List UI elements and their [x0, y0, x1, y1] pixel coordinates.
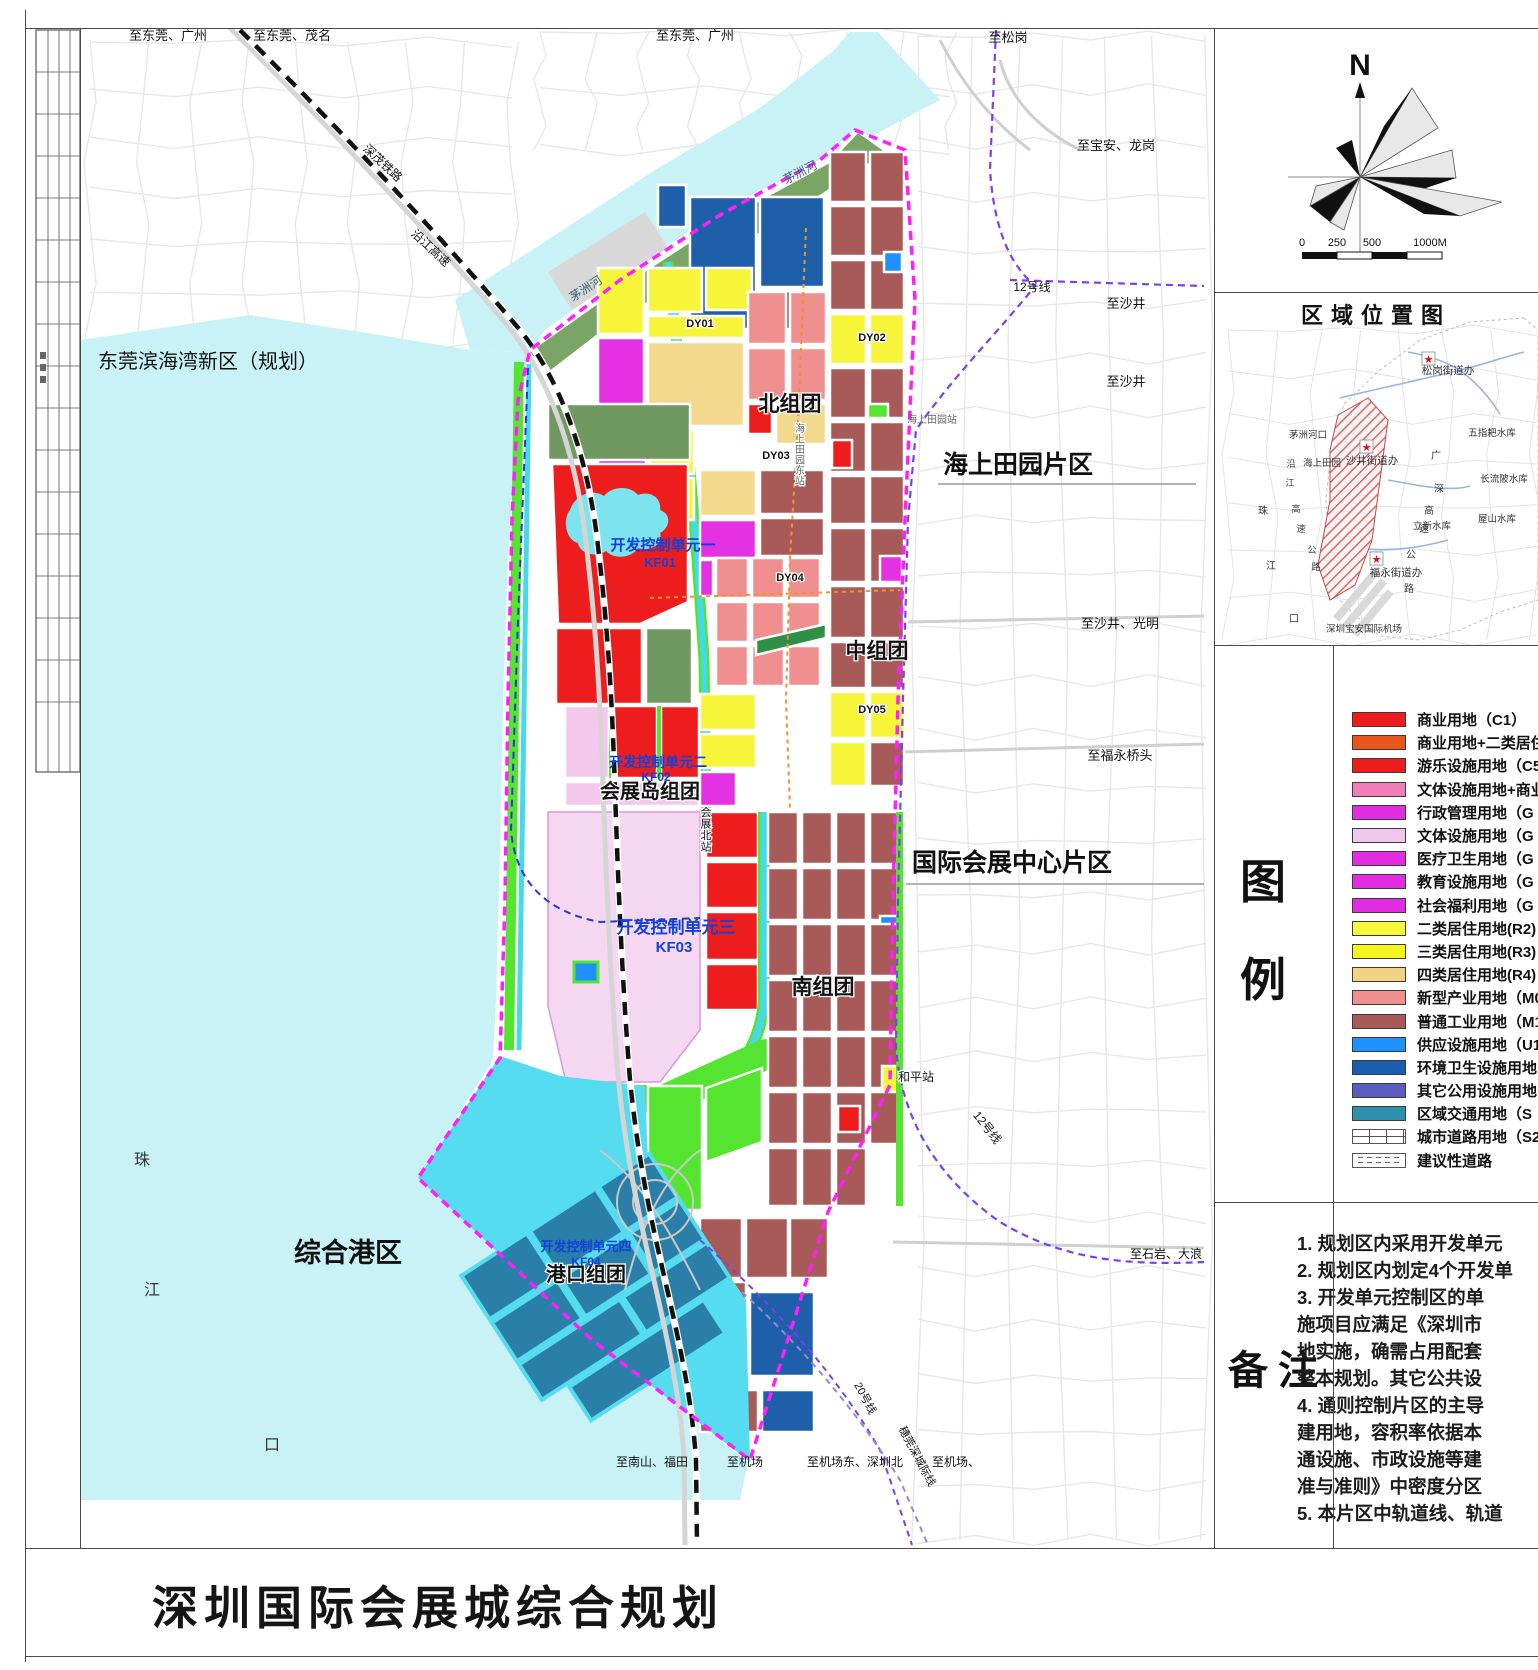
- legend-label-11: 四类居住用地(R4): [1417, 964, 1536, 985]
- legend-label-5: 文体设施用地（G: [1417, 825, 1534, 846]
- label-kf04-name: 开发控制单元四: [540, 1239, 631, 1254]
- divider-locationmap: [1214, 645, 1538, 646]
- label-to-dg-mm: 至东莞、茂名: [253, 28, 331, 43]
- label-su2: 速: [1419, 523, 1429, 535]
- frame-top: [25, 28, 1538, 29]
- label-gong2: 公: [1406, 550, 1416, 561]
- label-dongguan-new-area: 东莞滨海湾新区（规划）: [98, 350, 318, 373]
- legend-items: 商业用地（C1）商业用地+二类居住游乐设施用地（C5文体设施用地+商业行政管理用…: [1352, 708, 1538, 1172]
- label-to-dg-gz1: 至东莞、广州: [129, 28, 207, 43]
- label-to-baoan-longgang: 至宝安、龙岗: [1077, 138, 1155, 153]
- label-to-shajing-guangming: 至沙井、光明: [1081, 616, 1159, 631]
- page-title: 深圳国际会展城综合规划: [152, 1572, 724, 1638]
- label-zhu: 珠: [134, 1151, 150, 1169]
- label-to-dg-gz2: 至东莞、广州: [656, 28, 734, 43]
- label-south-group: 南组团: [792, 975, 855, 999]
- label-to-shajing1: 至沙井: [1106, 296, 1145, 311]
- legend-row: 医疗卫生用地（G: [1352, 847, 1538, 870]
- legend-label-8: 社会福利用地（G: [1417, 895, 1534, 916]
- label-kf02-code: KF02: [641, 770, 671, 784]
- label-to-songgang: 至松岗: [988, 30, 1027, 45]
- legend-label-14: 供应设施用地（U1: [1417, 1034, 1538, 1055]
- legend-swatch-5: [1352, 828, 1406, 843]
- label-to-nanshan-futian: 至南山、福田: [616, 1454, 688, 1469]
- scale-tick-250: 250: [1328, 237, 1346, 249]
- label-airport: 深圳宝安国际机场: [1326, 623, 1402, 635]
- title-block-strip: [0, 0, 120, 800]
- compass-rose: [1310, 88, 1502, 230]
- legend-row: 三类居住用地(R3): [1352, 940, 1538, 963]
- label-st-huizhanbei: 会展北站: [701, 806, 712, 854]
- legend-swatch-13: [1352, 1014, 1406, 1029]
- scale-bar: 0 250 500 1000M: [1299, 237, 1447, 259]
- compass-panel: N 0 250 500 1000M: [1214, 28, 1538, 292]
- label-st-hsty-east: 海上田园东站: [795, 422, 805, 488]
- legend-label-19: 建议性道路: [1417, 1150, 1492, 1171]
- legend-row: 环境卫生设施用地: [1352, 1056, 1538, 1079]
- label-middle-group: 中组团: [846, 639, 909, 663]
- legend-row: 二类居住用地(R2): [1352, 917, 1538, 940]
- label-to-jichang2: 至机场、: [932, 1455, 980, 1469]
- legend-label-7: 教育设施用地（G: [1417, 871, 1534, 892]
- label-to-jichang: 至机场: [727, 1455, 763, 1469]
- north-label: N: [1349, 49, 1371, 82]
- legend-swatch-17: [1352, 1106, 1406, 1121]
- legend-swatch-12: [1352, 990, 1406, 1005]
- inset-street-web: [1222, 325, 1538, 645]
- label-dy05: DY05: [858, 704, 886, 716]
- label-lu2: 路: [1404, 582, 1414, 595]
- title-block-text-marks: [40, 352, 46, 383]
- legend-swatch-1: [1352, 735, 1406, 750]
- legend-label-0: 商业用地（C1）: [1417, 709, 1526, 730]
- label-st-hsty: 海上田园站: [907, 413, 957, 426]
- legend-swatch-6: [1352, 851, 1406, 866]
- legend-row: 商业用地+二类居住: [1352, 731, 1538, 754]
- divider-compass: [1214, 292, 1538, 293]
- legend-label-12: 新型产业用地（M0: [1417, 987, 1538, 1008]
- frame-left: [25, 10, 26, 1662]
- legend-row: 供应设施用地（U1: [1352, 1033, 1538, 1056]
- divider-legend: [1214, 1202, 1538, 1203]
- label-gong: 公: [1307, 545, 1316, 555]
- legend-label-15: 环境卫生设施用地: [1417, 1057, 1537, 1078]
- legend-swatch-11: [1352, 967, 1406, 982]
- label-kf03-name: 开发控制单元三: [617, 917, 736, 937]
- label-gao2: 高: [1424, 504, 1434, 517]
- frame-panel-left: [1214, 28, 1215, 1549]
- legend-row: 游乐设施用地（C5: [1352, 754, 1538, 777]
- legend-row: 其它公用设施用地: [1352, 1079, 1538, 1102]
- star-icon: ★: [1362, 442, 1372, 454]
- label-dy02: DY02: [858, 332, 886, 344]
- label-jiang2: 江: [1285, 478, 1294, 488]
- legend-row: 教育设施用地（G: [1352, 870, 1538, 893]
- label-line12-a: 12号线: [1013, 280, 1050, 294]
- label-guang: 广: [1431, 450, 1441, 462]
- legend-label-17: 区域交通用地（S: [1417, 1103, 1532, 1124]
- legend-row: 城市道路用地（S2: [1352, 1125, 1538, 1148]
- label-songgang-office: 松岗街道办: [1422, 364, 1475, 377]
- label-fuyong-office: 福永街道办: [1370, 566, 1423, 579]
- legend-label-3: 文体设施用地+商业: [1417, 779, 1538, 800]
- label-shajing-office: 沙井街道办: [1346, 454, 1399, 467]
- label-north-group: 北组团: [759, 392, 822, 416]
- legend-label-16: 其它公用设施用地: [1417, 1080, 1537, 1101]
- scale-tick-1000: 1000M: [1413, 237, 1447, 249]
- legend-row: 新型产业用地（M0: [1352, 986, 1538, 1009]
- label-shen: 深: [1434, 483, 1444, 495]
- scale-tick-500: 500: [1363, 237, 1381, 249]
- label-kf01-code: KF01: [644, 555, 676, 570]
- legend-title-char-2: 例: [1240, 944, 1286, 1010]
- legend-label-18: 城市道路用地（S2: [1417, 1126, 1538, 1147]
- label-kf03-code: KF03: [656, 939, 693, 956]
- label-wuzhipa-reservoir: 五指耙水库: [1468, 427, 1516, 439]
- legend-swatch-7: [1352, 874, 1406, 889]
- label-dy04: DY04: [776, 572, 804, 584]
- label-to-shiyan-dalang: 至石岩、大浪: [1130, 1246, 1202, 1261]
- legend-swatch-8: [1352, 898, 1406, 913]
- label-kou: 口: [264, 1437, 280, 1454]
- label-maozhou-estuary: 茅洲河口: [1289, 429, 1327, 441]
- legend-swatch-4: [1352, 805, 1406, 820]
- legend-label-2: 游乐设施用地（C5: [1417, 755, 1538, 776]
- frame-map-left: [80, 28, 81, 1549]
- label-zhu: 珠: [1258, 504, 1268, 517]
- legend-label-9: 二类居住用地(R2): [1417, 918, 1536, 939]
- star-icon: ★: [1372, 554, 1382, 566]
- legend-row: 普通工业用地（M1: [1352, 1009, 1538, 1032]
- label-haishangtianyuan-district: 海上田园片区: [943, 450, 1093, 479]
- legend-swatch-15: [1352, 1060, 1406, 1075]
- legend-label-1: 商业用地+二类居住: [1417, 732, 1538, 753]
- legend-row: 文体设施用地+商业: [1352, 778, 1538, 801]
- label-changliupi-reservoir: 长流陂水库: [1480, 473, 1528, 485]
- label-su: 速: [1296, 524, 1305, 534]
- legend-swatch-0: [1352, 712, 1406, 727]
- legend-row: 行政管理用地（G: [1352, 801, 1538, 824]
- divider-legend-column: [1333, 645, 1334, 1549]
- label-lu: 路: [1311, 561, 1320, 572]
- legend-row: 文体设施用地（G: [1352, 824, 1538, 847]
- legend-label-10: 三类居住用地(R3): [1417, 941, 1536, 962]
- label-yan: 沿: [1286, 459, 1295, 469]
- label-st-heping: 和平站: [898, 1070, 934, 1084]
- legend-swatch-9: [1352, 921, 1406, 936]
- label-kf01-name: 开发控制单元一: [610, 536, 715, 554]
- label-haishang-tianyuan: 海上田园: [1303, 457, 1341, 469]
- location-inset-map: ★ ★ ★ 松岗街道办沙井街道办福永街道办五指耙水库长流陂水库立新水库屋山水库茅…: [1214, 292, 1538, 645]
- legend-swatch-14: [1352, 1037, 1406, 1052]
- legend-row: 社会福利用地（G: [1352, 894, 1538, 917]
- label-to-shajing2: 至沙井: [1106, 374, 1145, 389]
- legend-row: 四类居住用地(R4): [1352, 963, 1538, 986]
- label-jiang: 江: [1266, 560, 1276, 572]
- label-to-jichangdong-szb: 至机场东、深圳北: [807, 1455, 903, 1469]
- label-gao: 高: [1291, 503, 1300, 514]
- label-port-district: 综合港区: [294, 1237, 402, 1268]
- legend-swatch-2: [1352, 758, 1406, 773]
- legend-swatch-18: [1352, 1129, 1406, 1144]
- legend-swatch-3: [1352, 782, 1406, 797]
- plan-sheet: 至东莞、广州至东莞、茂名至东莞、广州至松岗至宝安、龙岗至沙井至沙井至沙井、光明至…: [0, 0, 1538, 1670]
- legend-swatch-19: [1352, 1153, 1406, 1168]
- legend-title-char-1: 图: [1240, 846, 1286, 912]
- label-jiang: 江: [144, 1281, 160, 1299]
- label-kou: 口: [1289, 614, 1299, 625]
- legend-row: 建议性道路: [1352, 1149, 1538, 1172]
- legend-swatch-16: [1352, 1083, 1406, 1098]
- label-to-fuyong-qiaotou: 至福永桥头: [1087, 748, 1152, 763]
- legend-row: 区域交通用地（S: [1352, 1102, 1538, 1125]
- label-wushan-reservoir: 屋山水库: [1478, 513, 1517, 525]
- label-exhibition-center-district: 国际会展中心片区: [912, 849, 1112, 877]
- legend-row: 商业用地（C1）: [1352, 708, 1538, 731]
- frame-bottom: [25, 1656, 1538, 1657]
- scale-tick-0: 0: [1299, 237, 1305, 249]
- legend-label-6: 医疗卫生用地（G: [1417, 848, 1534, 869]
- frame-map-bottom: [25, 1548, 1538, 1549]
- legend-label-4: 行政管理用地（G: [1417, 802, 1534, 823]
- label-dy01: DY01: [686, 318, 714, 330]
- legend-swatch-10: [1352, 944, 1406, 959]
- label-kf02-name: 开发控制单元二: [609, 754, 707, 770]
- legend-label-13: 普通工业用地（M1: [1417, 1011, 1538, 1032]
- label-dy03: DY03: [762, 450, 790, 462]
- label-kf04-code: KF04: [571, 1255, 601, 1269]
